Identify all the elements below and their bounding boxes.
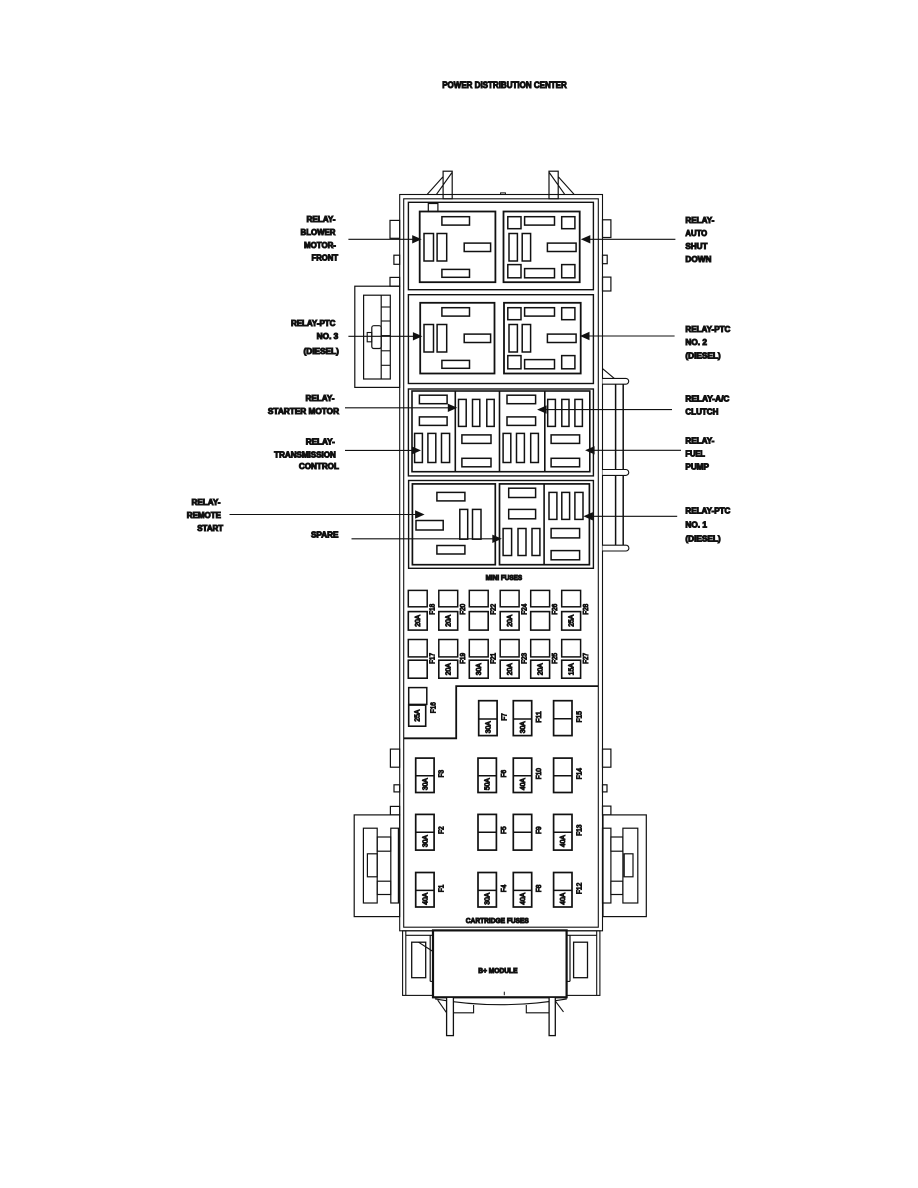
- svg-text:40A: 40A: [520, 778, 527, 790]
- svg-text:F19: F19: [460, 653, 467, 664]
- svg-text:RELAY-: RELAY-: [306, 394, 335, 403]
- svg-text:F4: F4: [501, 885, 508, 893]
- svg-text:30A: 30A: [520, 721, 527, 733]
- svg-text:MINI FUSES: MINI FUSES: [486, 575, 523, 582]
- svg-text:F17: F17: [430, 653, 437, 664]
- svg-text:CONTROL: CONTROL: [299, 462, 339, 471]
- svg-text:40A: 40A: [560, 835, 567, 847]
- svg-text:F23: F23: [521, 653, 528, 664]
- svg-text:FUEL: FUEL: [685, 450, 705, 459]
- svg-text:RELAY-: RELAY-: [307, 215, 336, 224]
- svg-text:30A: 30A: [476, 663, 483, 675]
- svg-text:F13: F13: [576, 824, 583, 836]
- svg-text:FRONT: FRONT: [312, 254, 339, 263]
- svg-text:REMOTE: REMOTE: [187, 511, 222, 520]
- svg-text:STARTER MOTOR: STARTER MOTOR: [268, 407, 339, 416]
- svg-text:CLUTCH: CLUTCH: [685, 408, 718, 417]
- svg-text:20A: 20A: [415, 614, 422, 626]
- svg-text:F5: F5: [501, 826, 508, 834]
- svg-text:20A: 20A: [538, 663, 545, 675]
- svg-text:RELAY-: RELAY-: [685, 437, 714, 446]
- svg-text:F24: F24: [521, 604, 528, 615]
- svg-text:CARTRIDGE FUSES: CARTRIDGE FUSES: [466, 916, 529, 925]
- svg-text:F15: F15: [576, 711, 583, 723]
- svg-text:30A: 30A: [485, 721, 492, 733]
- svg-text:30A: 30A: [422, 835, 429, 847]
- svg-text:RELAY-A/C: RELAY-A/C: [685, 395, 729, 404]
- svg-text:F28: F28: [583, 604, 590, 615]
- svg-text:B+ MODULE: B+ MODULE: [478, 966, 517, 975]
- svg-text:MOTOR-: MOTOR-: [304, 241, 336, 250]
- svg-text:(DIESEL): (DIESEL): [685, 534, 721, 543]
- svg-text:PUMP: PUMP: [685, 462, 709, 471]
- svg-text:SPARE: SPARE: [311, 531, 339, 540]
- svg-text:F1: F1: [439, 885, 446, 893]
- svg-text:F26: F26: [552, 604, 559, 615]
- svg-text:F21: F21: [491, 653, 498, 664]
- svg-text:20A: 20A: [507, 663, 514, 675]
- svg-text:20A: 20A: [446, 663, 453, 675]
- svg-text:20A: 20A: [446, 614, 453, 626]
- svg-text:F7: F7: [502, 713, 509, 721]
- svg-text:NO. 3: NO. 3: [317, 332, 339, 341]
- svg-text:F3: F3: [439, 770, 446, 778]
- svg-text:AUTO: AUTO: [685, 229, 707, 238]
- svg-text:F12: F12: [576, 883, 583, 895]
- svg-text:POWER DISTRIBUTION CENTER: POWER DISTRIBUTION CENTER: [442, 80, 567, 90]
- svg-text:(DIESEL): (DIESEL): [685, 351, 721, 360]
- svg-text:START: START: [197, 524, 223, 533]
- svg-text:F11: F11: [536, 711, 543, 723]
- svg-text:15A: 15A: [569, 663, 576, 675]
- svg-text:F27: F27: [583, 653, 590, 664]
- svg-text:NO. 1: NO. 1: [685, 520, 707, 529]
- svg-text:F10: F10: [536, 768, 543, 780]
- svg-text:DOWN: DOWN: [685, 255, 711, 264]
- svg-text:F16: F16: [431, 702, 438, 713]
- svg-text:RELAY-PTC: RELAY-PTC: [685, 507, 730, 516]
- svg-text:TRANSMISSION: TRANSMISSION: [274, 451, 336, 460]
- svg-text:20A: 20A: [507, 614, 514, 626]
- svg-text:RELAY-PTC: RELAY-PTC: [685, 325, 730, 334]
- svg-text:F20: F20: [460, 604, 467, 615]
- svg-text:RELAY-PTC: RELAY-PTC: [291, 319, 336, 328]
- svg-text:30A: 30A: [485, 892, 492, 904]
- svg-text:RELAY-: RELAY-: [306, 438, 335, 447]
- svg-text:50A: 50A: [485, 778, 492, 790]
- svg-text:F9: F9: [536, 826, 543, 834]
- svg-text:F18: F18: [430, 604, 437, 615]
- svg-text:40A: 40A: [560, 892, 567, 904]
- svg-text:25A: 25A: [569, 614, 576, 626]
- svg-text:F2: F2: [439, 826, 446, 834]
- svg-text:NO. 2: NO. 2: [685, 338, 707, 347]
- svg-text:F22: F22: [491, 604, 498, 615]
- svg-text:F14: F14: [576, 768, 583, 780]
- svg-text:F6: F6: [501, 770, 508, 778]
- svg-text:F25: F25: [552, 653, 559, 664]
- svg-text:25A: 25A: [415, 709, 422, 721]
- svg-text:40A: 40A: [520, 892, 527, 904]
- svg-text:(DIESEL): (DIESEL): [304, 347, 340, 356]
- svg-text:RELAY-: RELAY-: [685, 216, 714, 225]
- svg-text:SHUT: SHUT: [685, 242, 707, 251]
- svg-text:RELAY-: RELAY-: [192, 498, 221, 507]
- svg-text:BLOWER: BLOWER: [301, 228, 336, 237]
- svg-text:40A: 40A: [422, 892, 429, 904]
- svg-text:F8: F8: [536, 885, 543, 893]
- svg-text:30A: 30A: [422, 778, 429, 790]
